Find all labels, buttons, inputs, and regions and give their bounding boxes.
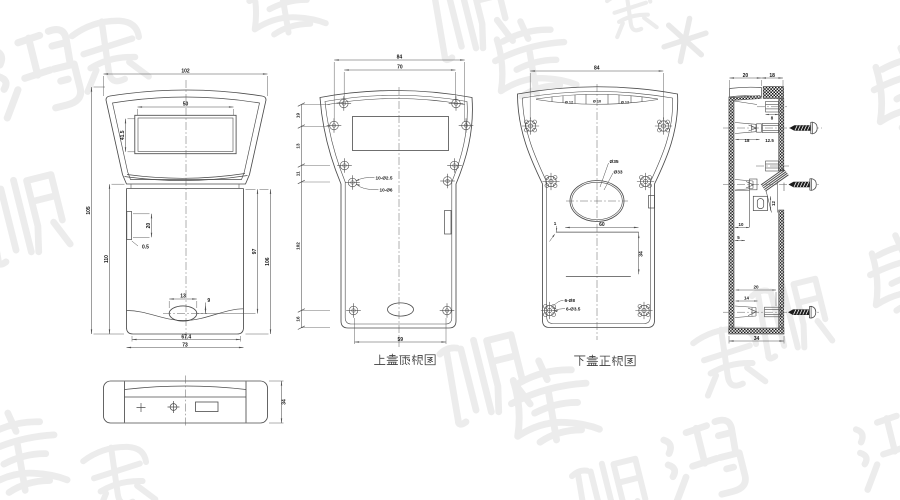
svg-text:84: 84 (594, 66, 600, 72)
svg-text:6-Ø3.5: 6-Ø3.5 (566, 306, 581, 311)
svg-text:97: 97 (252, 248, 258, 254)
svg-text:34: 34 (754, 336, 760, 342)
svg-text:102: 102 (181, 69, 190, 75)
svg-text:41.5: 41.5 (120, 130, 126, 140)
svg-text:18: 18 (745, 138, 750, 143)
svg-text:60: 60 (599, 222, 605, 228)
svg-text:73: 73 (182, 342, 188, 348)
svg-text:106: 106 (265, 257, 271, 266)
svg-text:13: 13 (296, 143, 301, 149)
svg-text:11: 11 (296, 171, 301, 176)
svg-text:102: 102 (296, 242, 301, 250)
svg-text:59: 59 (397, 337, 403, 343)
svg-text:Ø 12: Ø 12 (621, 100, 629, 104)
svg-text:20: 20 (146, 223, 152, 229)
svg-text:Ø35: Ø35 (610, 159, 619, 165)
svg-text:1: 1 (554, 221, 557, 226)
svg-text:34: 34 (282, 399, 288, 405)
svg-text:110: 110 (104, 255, 110, 263)
svg-text:0.5: 0.5 (142, 245, 149, 251)
svg-text:12.5: 12.5 (765, 138, 774, 143)
svg-text:84: 84 (397, 55, 403, 61)
svg-text:105: 105 (86, 206, 92, 215)
svg-text:10-Ø6: 10-Ø6 (380, 187, 393, 192)
svg-text:67.4: 67.4 (181, 334, 191, 340)
svg-text:10: 10 (739, 222, 744, 227)
svg-text:Ø 12: Ø 12 (565, 100, 573, 104)
svg-text:70: 70 (397, 65, 403, 71)
svg-text:18: 18 (769, 73, 775, 79)
svg-text:13: 13 (180, 294, 186, 300)
svg-text:14: 14 (744, 296, 749, 301)
svg-text:34: 34 (639, 251, 645, 257)
svg-text:9: 9 (207, 298, 210, 304)
svg-text:12: 12 (771, 201, 776, 206)
svg-text:20: 20 (753, 285, 759, 290)
svg-text:16: 16 (296, 316, 301, 322)
svg-text:10-Ø2.5: 10-Ø2.5 (376, 176, 393, 181)
svg-text:19: 19 (296, 113, 301, 119)
svg-text:50: 50 (183, 102, 189, 108)
svg-text:Ø33: Ø33 (614, 170, 623, 176)
svg-text:6-Ø8: 6-Ø8 (565, 298, 576, 303)
svg-text:20: 20 (743, 73, 749, 79)
